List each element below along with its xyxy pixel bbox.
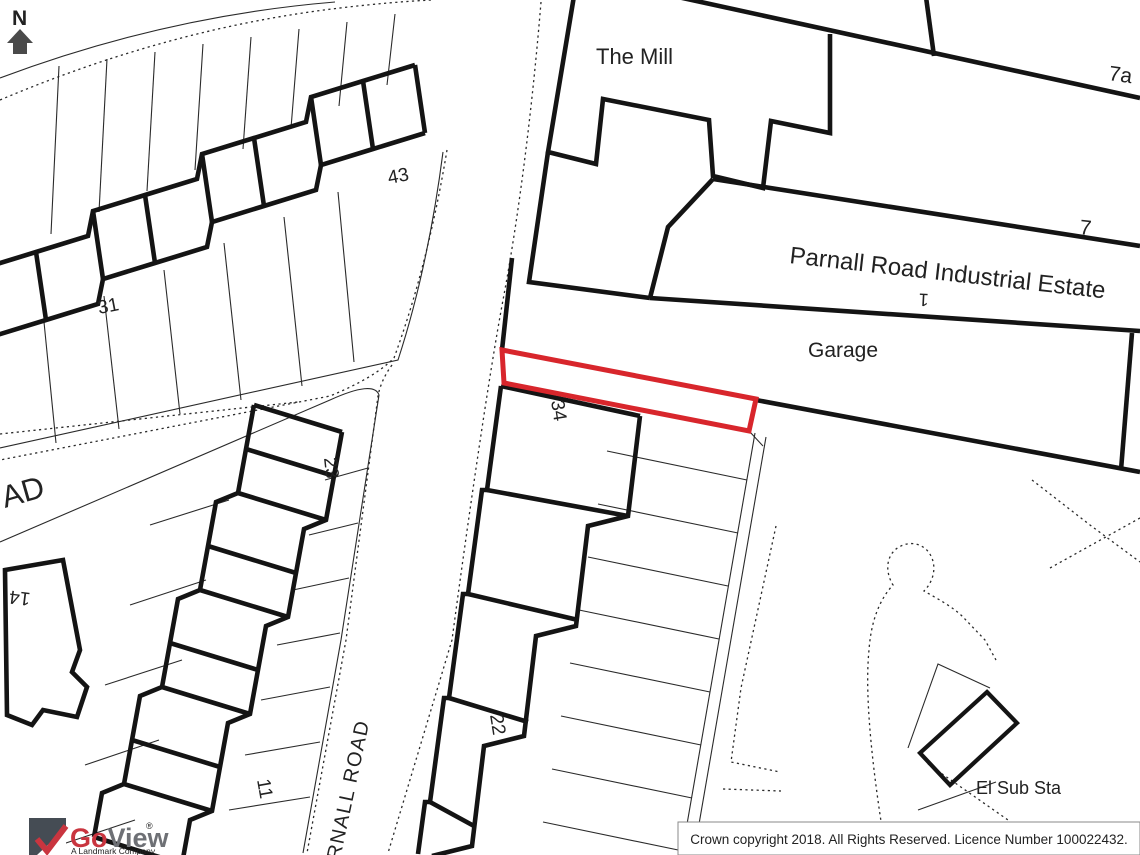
- map-linework: [694, 437, 766, 853]
- map-linework: [245, 742, 320, 755]
- label-14: 14: [8, 585, 32, 608]
- goview-logo: GoView ® A Landmark Company: [29, 818, 170, 855]
- map-linework: [36, 65, 425, 320]
- map-linework: [0, 152, 443, 448]
- map-linework: [105, 660, 182, 685]
- label-31: 31: [96, 294, 121, 319]
- map-linework: [388, 2, 541, 853]
- map-linework: [543, 822, 683, 851]
- map-linework: [284, 217, 302, 386]
- map-linework: [713, 179, 1140, 246]
- copyright-text: Crown copyright 2018. All Rights Reserve…: [690, 832, 1128, 847]
- map-linework: [678, 0, 1140, 98]
- map-linework: [94, 405, 254, 837]
- map-canvas: N The Mill 7a 7 Parnall Road Industrial …: [0, 0, 1140, 855]
- label-23: 23: [319, 456, 342, 479]
- map-linework: [291, 29, 299, 128]
- map-linework: [552, 769, 692, 798]
- map-linework: [570, 663, 710, 692]
- map-linework: [261, 687, 330, 700]
- map-linework: [293, 578, 349, 590]
- map-linework: [548, 0, 830, 188]
- site-boundary: [502, 350, 756, 431]
- map-linework: [750, 432, 763, 446]
- map-linework: [926, 0, 934, 56]
- north-label: N: [12, 7, 27, 30]
- map-linework: [579, 610, 719, 639]
- map-linework: [529, 152, 650, 298]
- map-linework: [607, 451, 747, 480]
- map-linework: [1032, 480, 1140, 568]
- map-linework: [868, 544, 996, 853]
- map-linework: [0, 0, 432, 100]
- map-linework: [0, 133, 425, 336]
- logo-tagline: A Landmark Company: [71, 846, 156, 855]
- building-outlines: [0, 0, 1140, 855]
- label-11: 11: [252, 777, 276, 800]
- map-linework: [0, 2, 335, 78]
- os-map: N The Mill 7a 7 Parnall Road Industrial …: [0, 0, 1140, 855]
- label-43: 43: [386, 164, 411, 189]
- logo-registered-mark: ®: [146, 821, 153, 831]
- map-linework: [588, 557, 728, 586]
- map-linework: [339, 22, 347, 106]
- map-linework: [1121, 333, 1132, 470]
- map-linework: [147, 52, 155, 191]
- map-linework: [561, 716, 701, 745]
- map-linework: [650, 298, 1140, 331]
- label-garage: Garage: [808, 339, 878, 362]
- map-linework: [51, 66, 59, 234]
- map-linework: [682, 433, 755, 853]
- map-linework: [277, 633, 340, 645]
- map-linework: [756, 400, 1140, 472]
- map-linework: [243, 37, 251, 149]
- map-linework: [650, 179, 713, 298]
- dashed-boundary-lines: [0, 0, 1140, 853]
- map-linework: [908, 664, 990, 748]
- copyright-box: Crown copyright 2018. All Rights Reserve…: [678, 822, 1140, 855]
- label-parnall-road: PARNALL ROAD: [317, 718, 374, 855]
- label-road-ad: AD: [0, 469, 48, 515]
- label-the-mill: The Mill: [596, 44, 673, 69]
- map-linework: [432, 416, 640, 855]
- map-linework: [338, 192, 354, 362]
- label-industrial-estate: Parnall Road Industrial Estate: [788, 242, 1107, 304]
- map-labels: The Mill 7a 7 Parnall Road Industrial Es…: [0, 44, 1134, 855]
- map-linework: [44, 322, 56, 443]
- map-linework: [5, 560, 87, 725]
- map-linework: [164, 270, 180, 414]
- map-linework: [195, 44, 203, 170]
- label-1: 1: [918, 289, 929, 309]
- map-linework: [99, 59, 107, 212]
- label-34: 34: [546, 398, 570, 423]
- map-linework: [0, 150, 447, 460]
- el-sub-sta-building: [920, 692, 1017, 785]
- label-el-sub-sta: El Sub Sta: [976, 778, 1062, 798]
- label-7a: 7a: [1107, 62, 1134, 88]
- map-linework: [229, 797, 310, 810]
- map-linework: [418, 386, 501, 854]
- north-arrow-icon: N: [7, 7, 33, 54]
- label-7: 7: [1078, 216, 1092, 240]
- label-22: 22: [485, 712, 509, 736]
- map-linework: [502, 258, 512, 350]
- map-linework: [224, 243, 241, 400]
